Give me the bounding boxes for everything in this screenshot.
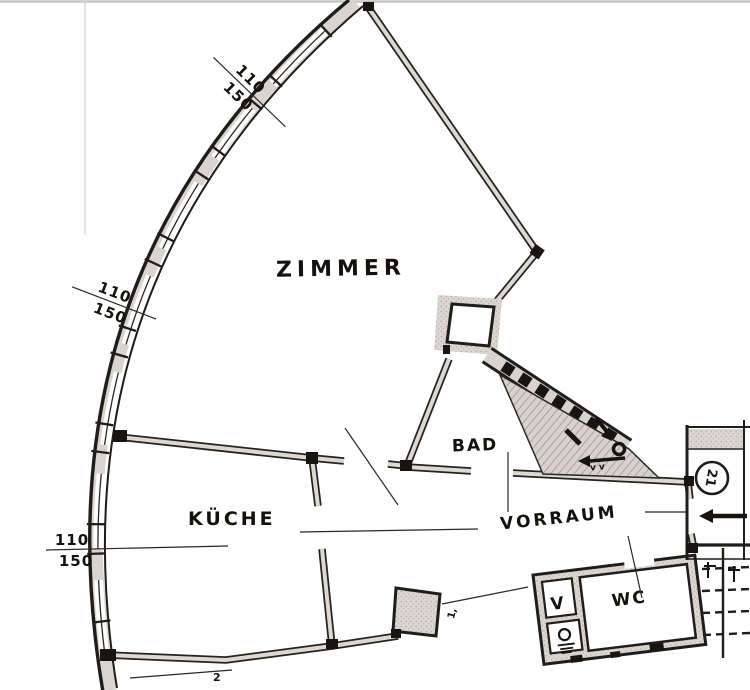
room-label-zimmer: ZIMMER [276,255,406,282]
room-label-kueche: KÜCHE [188,506,276,530]
wall-junctions [100,2,698,661]
entrance-arrow-icon [699,509,713,523]
note-2: 2 [213,671,221,684]
note-1: 1, [446,607,459,620]
stair-marker-label: 21 [702,468,720,488]
dimension-label-3: 110 150 [46,531,228,570]
dim-bottom: 150 [59,552,93,570]
floor-plan-canvas: V WC 21 [0,0,750,690]
curved-facade-wall [87,0,363,690]
entrance-wedge [500,375,659,478]
dim-top: 110 [55,531,89,549]
floor-plan-page: V WC 21 [0,0,750,690]
note-vv: v v [590,462,606,473]
room-label-wc: WC [611,587,648,611]
scan-frame [0,0,750,235]
room-label-vorraum: VORRAUM [499,502,618,534]
partition-walls [107,7,694,660]
room-label-bad: BAD [452,435,499,457]
wc-block: V WC [533,551,706,666]
pier-block [393,588,440,636]
bath-niche [434,295,502,355]
